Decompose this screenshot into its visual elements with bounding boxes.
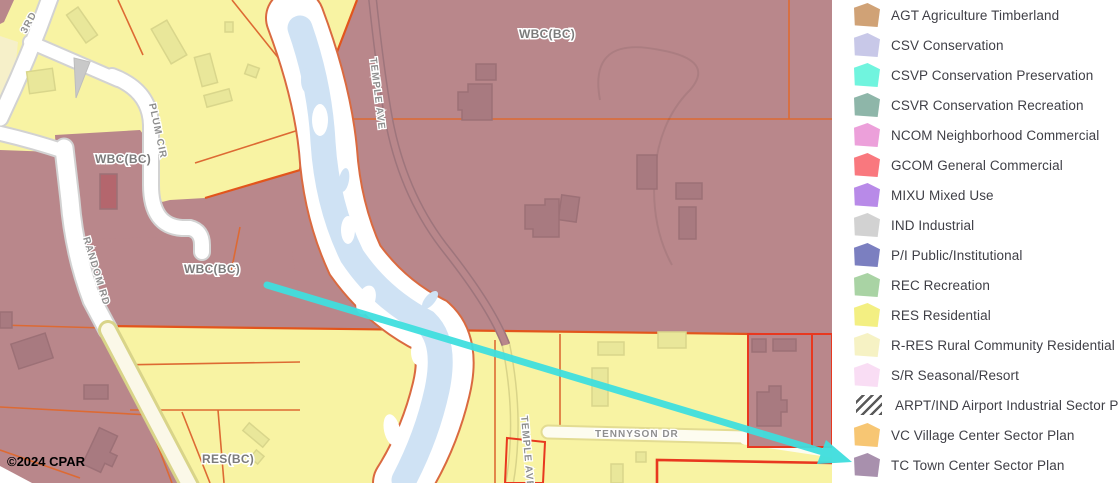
legend-label-sr: S/R Seasonal/Resort	[891, 368, 1019, 383]
legend-label-gcom: GCOM General Commercial	[891, 158, 1063, 173]
legend-swatch-pi	[854, 243, 880, 267]
legend-label-vc: VC Village Center Sector Plan	[891, 428, 1075, 443]
legend-label-arpt: ARPT/IND Airport Industrial Sector Plan	[895, 398, 1119, 413]
label-res: RES(BC)	[202, 452, 254, 466]
legend-row-gcom: GCOM General Commercial	[832, 150, 1119, 180]
legend-swatch-sr	[854, 363, 880, 387]
legend-label-res: RES Residential	[891, 308, 991, 323]
label-wbc-top: WBC(BC)	[519, 27, 575, 41]
label-tennyson-dr: TENNYSON DR	[595, 429, 679, 440]
legend-swatch-csvp	[854, 63, 880, 87]
legend-row-pi: P/I Public/Institutional	[832, 240, 1119, 270]
legend-swatch-gcom	[854, 153, 880, 177]
legend-swatch-vc	[854, 423, 880, 447]
legend-label-csvr: CSVR Conservation Recreation	[891, 98, 1084, 113]
legend-row-rres: R-RES Rural Community Residential	[832, 330, 1119, 360]
legend-swatch-res	[854, 303, 880, 327]
legend-row-csv: CSV Conservation	[832, 30, 1119, 60]
legend-row-mixu: MIXU Mixed Use	[832, 180, 1119, 210]
legend-swatch-tc	[854, 453, 880, 477]
legend-swatch-csvr	[854, 93, 880, 117]
legend-label-ind: IND Industrial	[891, 218, 974, 233]
legend-swatch-mixu	[854, 183, 880, 207]
legend-swatch-rec	[854, 273, 880, 297]
legend-row-arpt: ARPT/IND Airport Industrial Sector Plan	[832, 390, 1119, 420]
legend-row-ncom: NCOM Neighborhood Commercial	[832, 120, 1119, 150]
legend-row-vc: VC Village Center Sector Plan	[832, 420, 1119, 450]
legend-row-agt: AGT Agriculture Timberland	[832, 0, 1119, 30]
legend-swatch-csv	[854, 33, 880, 57]
legend-swatch-ncom	[854, 123, 880, 147]
legend-row-sr: S/R Seasonal/Resort	[832, 360, 1119, 390]
legend-row-rec: REC Recreation	[832, 270, 1119, 300]
legend-swatch-ind	[854, 213, 880, 237]
copyright-text: ©2024 CPAR	[7, 454, 86, 469]
legend-label-rec: REC Recreation	[891, 278, 990, 293]
legend-row-res: RES Residential	[832, 300, 1119, 330]
legend-panel: AGT Agriculture Timberland CSV Conservat…	[832, 0, 1119, 483]
legend-row-csvp: CSVP Conservation Preservation	[832, 60, 1119, 90]
legend-row-ind: IND Industrial	[832, 210, 1119, 240]
legend-swatch-rres	[854, 333, 880, 357]
legend-label-tc: TC Town Center Sector Plan	[891, 458, 1064, 473]
legend-label-csv: CSV Conservation	[891, 38, 1004, 53]
legend-row-tc: TC Town Center Sector Plan	[832, 450, 1119, 480]
legend-label-rres: R-RES Rural Community Residential	[891, 338, 1115, 353]
legend-label-csvp: CSVP Conservation Preservation	[891, 68, 1093, 83]
legend-swatch-arpt	[856, 395, 882, 415]
legend-label-ncom: NCOM Neighborhood Commercial	[891, 128, 1099, 143]
legend-swatch-agt	[854, 3, 880, 27]
zoning-map-view: WBC(BC) WBC(BC) WBC(BC) RES(BC) TENNYSON…	[0, 0, 1119, 483]
label-wbc-lower: WBC(BC)	[184, 262, 240, 276]
legend-label-pi: P/I Public/Institutional	[891, 248, 1022, 263]
legend-label-agt: AGT Agriculture Timberland	[891, 8, 1059, 23]
label-wbc-mid: WBC(BC)	[95, 152, 151, 166]
legend-label-mixu: MIXU Mixed Use	[891, 188, 994, 203]
map-canvas[interactable]: WBC(BC) WBC(BC) WBC(BC) RES(BC) TENNYSON…	[0, 0, 832, 483]
legend-row-csvr: CSVR Conservation Recreation	[832, 90, 1119, 120]
